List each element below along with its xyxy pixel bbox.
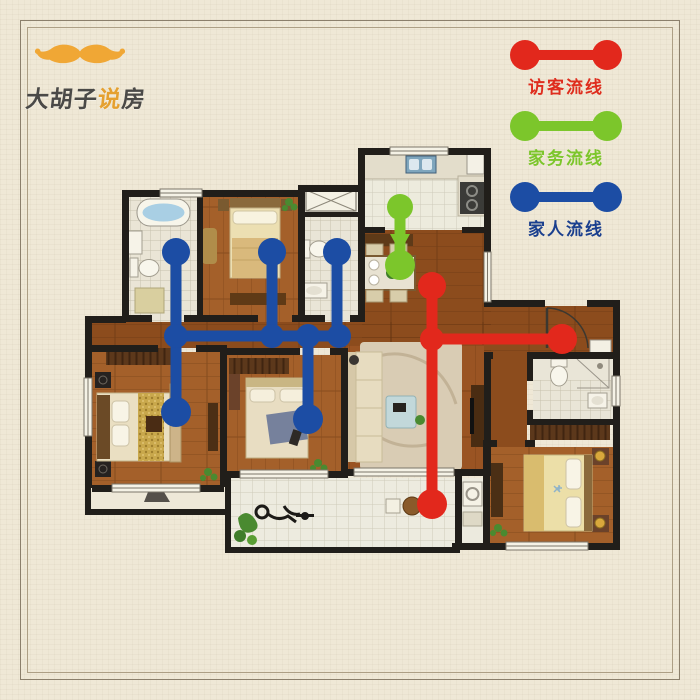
wall [122, 190, 129, 322]
speaker [95, 461, 111, 477]
pillow [250, 389, 275, 402]
bathroom-2-tile [298, 215, 362, 322]
master-dresser [208, 403, 218, 451]
wall [527, 352, 620, 359]
balcony-chair [386, 499, 400, 513]
window-icon [112, 484, 200, 492]
washbasin-bowl [306, 286, 322, 295]
window-icon [240, 470, 328, 478]
toilet-tank-1 [130, 258, 138, 277]
window-icon [390, 147, 448, 155]
wall [358, 148, 365, 322]
wall [298, 212, 362, 217]
balcony-wall [85, 509, 227, 515]
balcony-plant [247, 535, 257, 545]
balcony-wall [225, 547, 460, 553]
pillow [233, 211, 277, 224]
laptop [393, 403, 406, 412]
vanity-cabinet [135, 288, 164, 313]
pillow [566, 459, 581, 489]
wall [527, 355, 533, 381]
family-flow-node [323, 238, 351, 266]
poster-canvas: 大胡子说房 访客流线 家务流线 家人流线 [0, 0, 700, 700]
dining-chair [366, 244, 383, 256]
sink-basin [409, 159, 419, 170]
sofa-icon [356, 352, 382, 462]
family-flow-node [327, 324, 351, 348]
speaker [95, 372, 111, 388]
wall [462, 227, 490, 233]
window-icon [160, 189, 202, 197]
window-icon [84, 378, 92, 436]
bed-headboard [97, 395, 110, 459]
washbasin-bowl [592, 396, 604, 405]
nightstand [218, 199, 229, 211]
wall [362, 227, 385, 233]
family-flow-node [161, 397, 191, 427]
bed-headboard [584, 455, 592, 531]
wall [220, 345, 227, 487]
window-icon [506, 542, 588, 550]
sink-basin [422, 159, 432, 170]
wall [484, 352, 493, 359]
plate [369, 275, 379, 285]
bathtub-water [143, 204, 185, 222]
visitor-flow-node [418, 272, 446, 300]
bed-foot-throw [524, 455, 544, 531]
dining-chair [366, 290, 383, 302]
floorplan [0, 0, 700, 700]
wall [184, 315, 258, 322]
family-flow-node [162, 238, 190, 266]
bedroom-2-cabinet [229, 374, 240, 410]
family-flow-node [296, 324, 320, 348]
armchair [202, 228, 217, 264]
wall [483, 440, 497, 447]
plate [369, 260, 379, 270]
wall [484, 355, 491, 476]
wall [455, 471, 462, 550]
lamp [595, 518, 605, 528]
wall [227, 348, 300, 355]
visitor-flow-node [417, 489, 447, 519]
pillow [112, 425, 129, 446]
shoe-cabinet [590, 340, 611, 354]
visitor-flow-node [420, 327, 444, 351]
shower-head [597, 363, 603, 369]
wall [122, 190, 305, 197]
toilet-icon [139, 260, 159, 277]
bedroom-3-desk [491, 463, 503, 517]
housework-flow-node [385, 250, 415, 280]
balcony-plant [234, 530, 246, 542]
wall [298, 185, 305, 322]
wall [92, 345, 158, 352]
family-flow-node [164, 324, 188, 348]
wardrobe-stripes [229, 358, 289, 374]
bed-headboard [246, 378, 308, 387]
toilet-icon [551, 366, 568, 386]
utility-shelf [463, 512, 482, 526]
dining-chair [390, 290, 407, 302]
floor-lamp [349, 355, 359, 365]
tv-icon [470, 398, 474, 434]
visitor-flow-node [547, 324, 577, 354]
wall [525, 440, 535, 447]
dresser [230, 293, 286, 305]
window-icon [612, 376, 620, 406]
pillow [280, 389, 305, 402]
window-icon [484, 252, 491, 302]
wall [298, 185, 362, 192]
housework-flow-node [387, 194, 413, 220]
wall [484, 300, 545, 307]
family-flow-node [260, 324, 284, 348]
family-flow-node [293, 404, 323, 434]
wall [85, 316, 126, 323]
family-flow-node [258, 238, 286, 266]
pillow [566, 497, 581, 527]
rug-plant [415, 415, 425, 425]
wall [197, 190, 203, 315]
corridor-floor [490, 352, 527, 447]
wardrobe-stripes [530, 425, 610, 440]
lamp [595, 451, 605, 461]
gym-bar [296, 514, 314, 517]
bed-headboard [230, 198, 280, 209]
window-icon [354, 468, 454, 476]
wall [292, 315, 325, 322]
fridge-icon [467, 154, 484, 174]
wall [196, 345, 224, 352]
pillow [112, 401, 129, 422]
bed-tray [146, 416, 162, 432]
wall [341, 348, 348, 478]
wall [527, 419, 620, 425]
wall [122, 315, 152, 322]
